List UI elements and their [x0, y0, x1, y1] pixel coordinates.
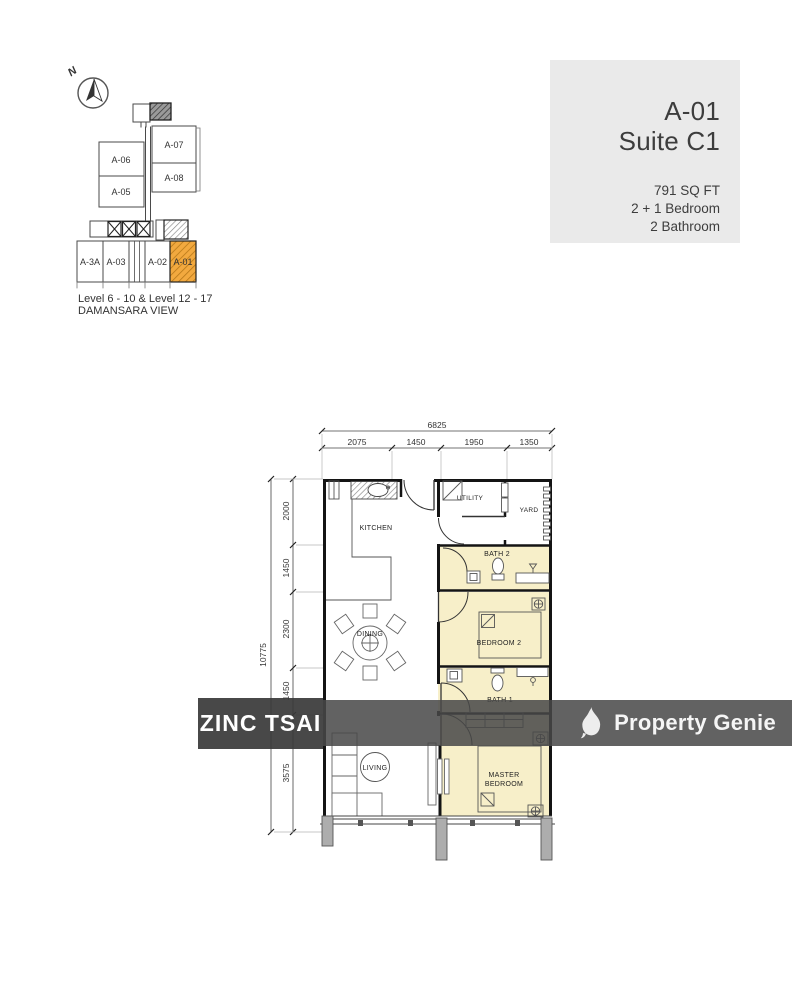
unit-area: 791 SQ FT	[550, 182, 720, 200]
kitchen-fittings	[326, 481, 397, 600]
dim-top-1: 2075	[348, 437, 367, 447]
north-label: N	[66, 64, 80, 79]
flame-icon	[580, 705, 602, 741]
stair-core-top	[150, 103, 171, 120]
dim-left-1: 2000	[281, 501, 291, 520]
dim-top-3: 1950	[465, 437, 484, 447]
label-yard: YARD	[520, 507, 539, 514]
label-master-2: BEDROOM	[485, 781, 523, 788]
key-plan-project: DAMANSARA VIEW	[78, 305, 179, 317]
unit-label-a01: A-01	[173, 257, 192, 267]
suite-type: Suite C1	[550, 126, 720, 156]
label-bath2: BATH 2	[484, 551, 510, 558]
dim-top-4: 1350	[520, 437, 539, 447]
unit-label-a08: A-08	[164, 173, 183, 183]
floor-plan: 6825 2075 1450 1950 1350 10775 2000	[258, 420, 555, 860]
unit-label-a06: A-06	[111, 155, 130, 165]
brand-watermark-text: Property Genie	[614, 710, 776, 736]
dim-left-5: 3575	[281, 763, 291, 782]
dim-left-2: 1450	[281, 558, 291, 577]
dims-left	[268, 476, 323, 835]
key-plan: N	[66, 64, 213, 317]
brand-watermark: Property Genie	[323, 700, 792, 746]
unit-bedrooms: 2 + 1 Bedroom	[550, 200, 720, 218]
label-bedroom2: BEDROOM 2	[477, 640, 522, 647]
label-dining: DINING	[357, 631, 383, 638]
unit-bathrooms: 2 Bathroom	[550, 218, 720, 236]
stair-core-mid	[164, 220, 188, 239]
label-utility: UTILITY	[457, 495, 484, 502]
dim-top-total: 6825	[428, 420, 447, 430]
agent-watermark-text: ZINC TSAI	[200, 710, 321, 737]
lift-core	[90, 221, 153, 237]
unit-label-a3a: A-3A	[80, 257, 100, 267]
unit-label-a03: A-03	[106, 257, 125, 267]
window-wall	[320, 816, 555, 860]
unit-info-card: A-01 Suite C1 791 SQ FT 2 + 1 Bedroom 2 …	[550, 60, 740, 243]
north-compass-icon: N	[66, 64, 108, 108]
dim-left-3: 2300	[281, 619, 291, 638]
dim-top-2: 1450	[407, 437, 426, 447]
unit-number: A-01	[550, 96, 720, 126]
label-kitchen: KITCHEN	[360, 525, 393, 532]
dining-set	[334, 604, 405, 680]
label-master-1: MASTER	[489, 772, 520, 779]
unit-label-a02: A-02	[148, 257, 167, 267]
agent-watermark: ZINC TSAI	[198, 698, 323, 749]
unit-label-a05: A-05	[111, 187, 130, 197]
dim-left-total: 10775	[258, 643, 268, 667]
dims-top	[319, 428, 555, 479]
label-living: LIVING	[363, 765, 388, 772]
floorplan-page: N	[0, 0, 792, 1000]
key-plan-levels: Level 6 - 10 & Level 12 - 17	[78, 293, 213, 305]
unit-label-a07: A-07	[164, 140, 183, 150]
